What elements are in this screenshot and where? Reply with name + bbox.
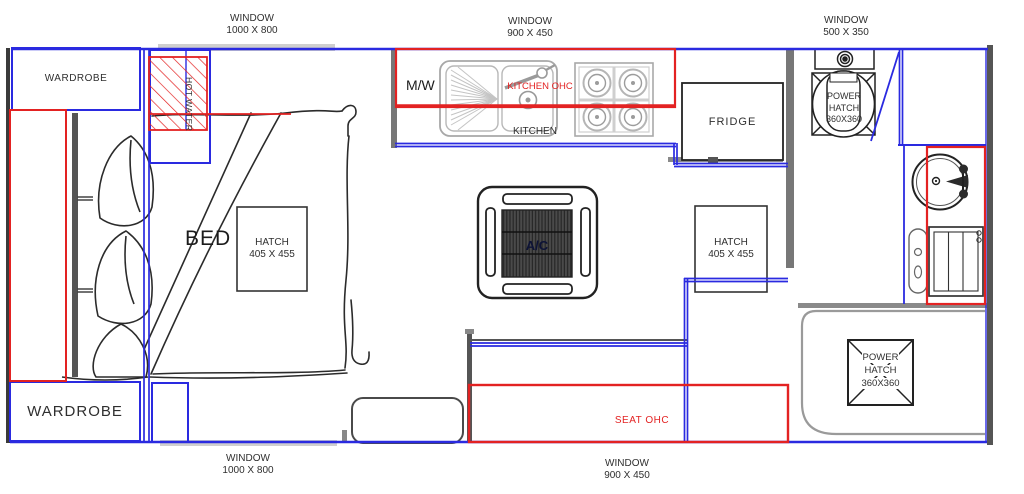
bedside-ohc-box <box>10 110 66 381</box>
bathroom-sink-icon <box>913 155 969 210</box>
mid-hatch-label: HATCH405 X 455 <box>695 206 767 292</box>
entry-step <box>352 398 463 443</box>
washer-icon <box>909 227 983 296</box>
toilet-power-hatch-label: POWER HATCH 360X360 <box>809 91 879 126</box>
hot-water-hatch <box>149 57 207 130</box>
stove-icon <box>575 63 653 136</box>
window-label-bottom-center: WINDOW900 X 450 <box>567 458 687 482</box>
window-label-top-left: WINDOW1000 X 800 <box>192 13 312 37</box>
seat-ohc-box <box>469 385 788 442</box>
shower-power-hatch-label: POWER HATCH 360X360 <box>845 351 916 390</box>
floor-plan: WINDOW1000 X 800 WINDOW900 X 450 WINDOW5… <box>0 0 1024 494</box>
bed-label: BED <box>185 233 231 245</box>
bed-hatch-label: HATCH405 X 455 <box>237 207 307 291</box>
hot-water-label: HOT WATER <box>183 58 195 150</box>
kitchen-sink-icon <box>440 61 557 136</box>
kitchen-ohc-label: KITCHEN OHC <box>488 81 592 93</box>
kitchen-label: KITCHEN <box>495 126 575 138</box>
wardrobe-bottom-label: WARDROBE <box>10 382 140 441</box>
seat-ohc-label: SEAT OHC <box>590 415 694 427</box>
window-label-top-right: WINDOW500 X 350 <box>786 15 906 39</box>
window-label-top-center: WINDOW900 X 450 <box>470 16 590 40</box>
fridge-label: FRIDGE <box>682 83 783 160</box>
window-label-bottom-left: WINDOW1000 X 800 <box>188 453 308 477</box>
wardrobe-top-label: WARDROBE <box>12 48 140 110</box>
microwave-label: M/W <box>406 79 435 91</box>
ac-label: A/C <box>502 240 572 252</box>
